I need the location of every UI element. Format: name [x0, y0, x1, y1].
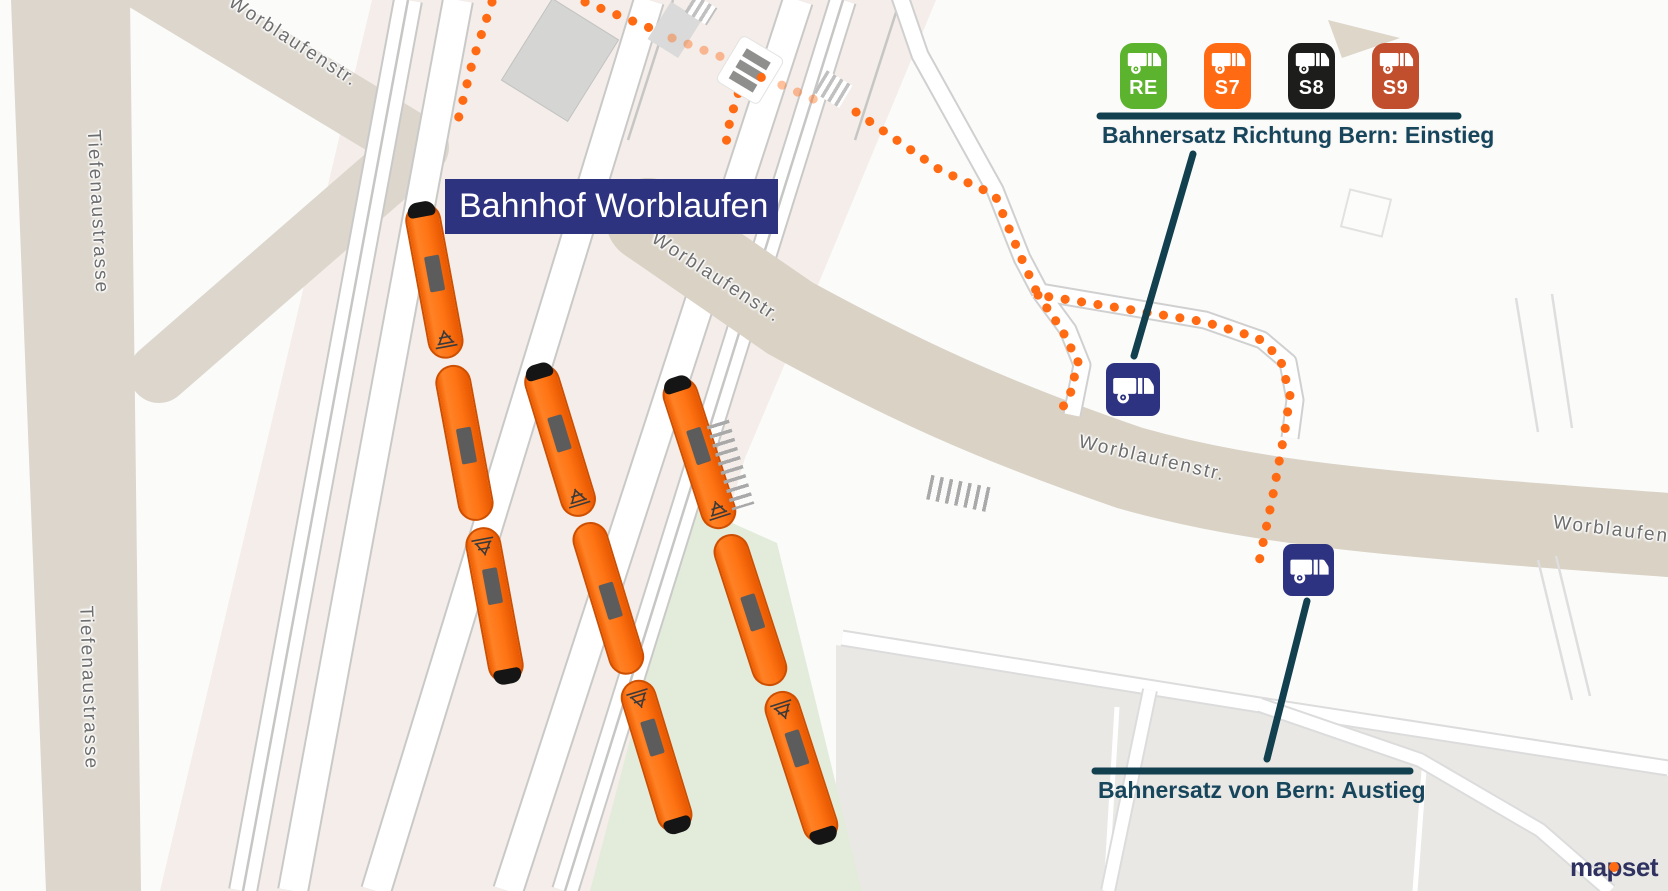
pantograph-icon: [431, 326, 460, 350]
minor-road-right: [1516, 294, 1590, 700]
bus-icon: [1210, 49, 1246, 76]
train-car: [432, 362, 496, 524]
badge-label: S9: [1383, 77, 1408, 100]
dotted-path-main: [856, 112, 1290, 567]
train-door: [482, 567, 503, 605]
train-door: [640, 718, 665, 757]
building-outline: [1340, 188, 1392, 237]
logo-p: p: [1607, 852, 1622, 882]
badge-label: RE: [1129, 77, 1158, 100]
pantograph-icon: [768, 697, 799, 724]
map-canvas: { "station": { "label": "Bahnhof Worblau…: [0, 0, 1668, 891]
dotted-path-platform: [458, 2, 492, 120]
badge-s8[interactable]: S8: [1288, 43, 1335, 109]
building-station-shed: [501, 0, 618, 121]
street-label-worblaufenstr-bridge: Worblaufenstr.: [647, 228, 785, 328]
stairs-icon: [926, 475, 992, 512]
street-label-worblaufenstr-right: Worblaufens: [1552, 512, 1668, 549]
train-1[interactable]: [402, 200, 526, 686]
logo-text: set: [1622, 852, 1658, 882]
platform-shelter: [716, 35, 784, 104]
logo-text: ma: [1570, 852, 1607, 882]
station-label[interactable]: Bahnhof Worblaufen: [445, 179, 778, 234]
street-tiefenaustrasse: [11, 0, 141, 891]
train-door: [456, 426, 477, 464]
train-car: [709, 529, 792, 690]
building-area-bottom-right: [836, 645, 1668, 891]
street-label-worblaufenstr-top-left: Worblaufenstr.: [224, 0, 362, 92]
bus-icon: [1126, 49, 1162, 76]
line-badge-row: RE S7 S8 S9: [1120, 43, 1419, 109]
road-bottom: [842, 638, 1668, 768]
einstieg-pointer-line: [1134, 154, 1193, 356]
train-door: [547, 414, 572, 453]
austieg-label[interactable]: Bahnersatz von Bern: Austieg: [1098, 777, 1426, 804]
train-car: [568, 518, 649, 680]
train-door: [740, 593, 765, 632]
bus-icon: [1294, 49, 1330, 76]
train-door: [784, 729, 809, 768]
badge-re[interactable]: RE: [1120, 43, 1167, 109]
einstieg-label[interactable]: Bahnersatz Richtung Bern: Einstieg: [1102, 122, 1494, 149]
road-casing-bottom: [842, 638, 1668, 768]
train-3[interactable]: [658, 372, 843, 847]
train-door: [598, 581, 623, 620]
crosswalk: [685, 0, 718, 25]
train-car: [520, 360, 601, 522]
pantograph-icon: [469, 535, 498, 559]
street-label-tiefenaustrasse-lower: Tiefenaustrasse: [74, 605, 102, 770]
mapset-logo[interactable]: mapset: [1570, 852, 1658, 883]
train-car: [462, 524, 526, 686]
dotted-path-top: [585, 2, 660, 32]
train-2[interactable]: [520, 360, 697, 837]
bus-stop-icon-austieg[interactable]: [1283, 544, 1334, 596]
train-car: [760, 686, 843, 847]
train-door: [424, 255, 445, 293]
badge-s7[interactable]: S7: [1204, 43, 1251, 109]
bus-icon: [1378, 49, 1414, 76]
dotted-path-spur: [1038, 295, 1078, 410]
austieg-pointer-line: [1267, 601, 1307, 759]
badge-label: S8: [1299, 77, 1324, 100]
street-label-tiefenaustrasse-upper: Tiefenaustrasse: [82, 129, 113, 294]
badge-s9[interactable]: S9: [1372, 43, 1419, 109]
train-car: [616, 675, 697, 837]
badge-label: S7: [1215, 77, 1240, 100]
bus-icon: [1111, 373, 1155, 406]
street-worblaufenstr-top-left: [141, 0, 419, 373]
bus-icon: [1288, 555, 1330, 586]
crosswalk: [813, 70, 852, 108]
pantograph-icon: [624, 686, 655, 713]
pantograph-icon: [562, 484, 593, 511]
street-label-worblaufenstr-center: Worblaufenstr.: [1076, 431, 1227, 486]
annotation-lines: [1095, 116, 1458, 771]
bus-stop-icon-einstieg[interactable]: [1106, 363, 1160, 416]
